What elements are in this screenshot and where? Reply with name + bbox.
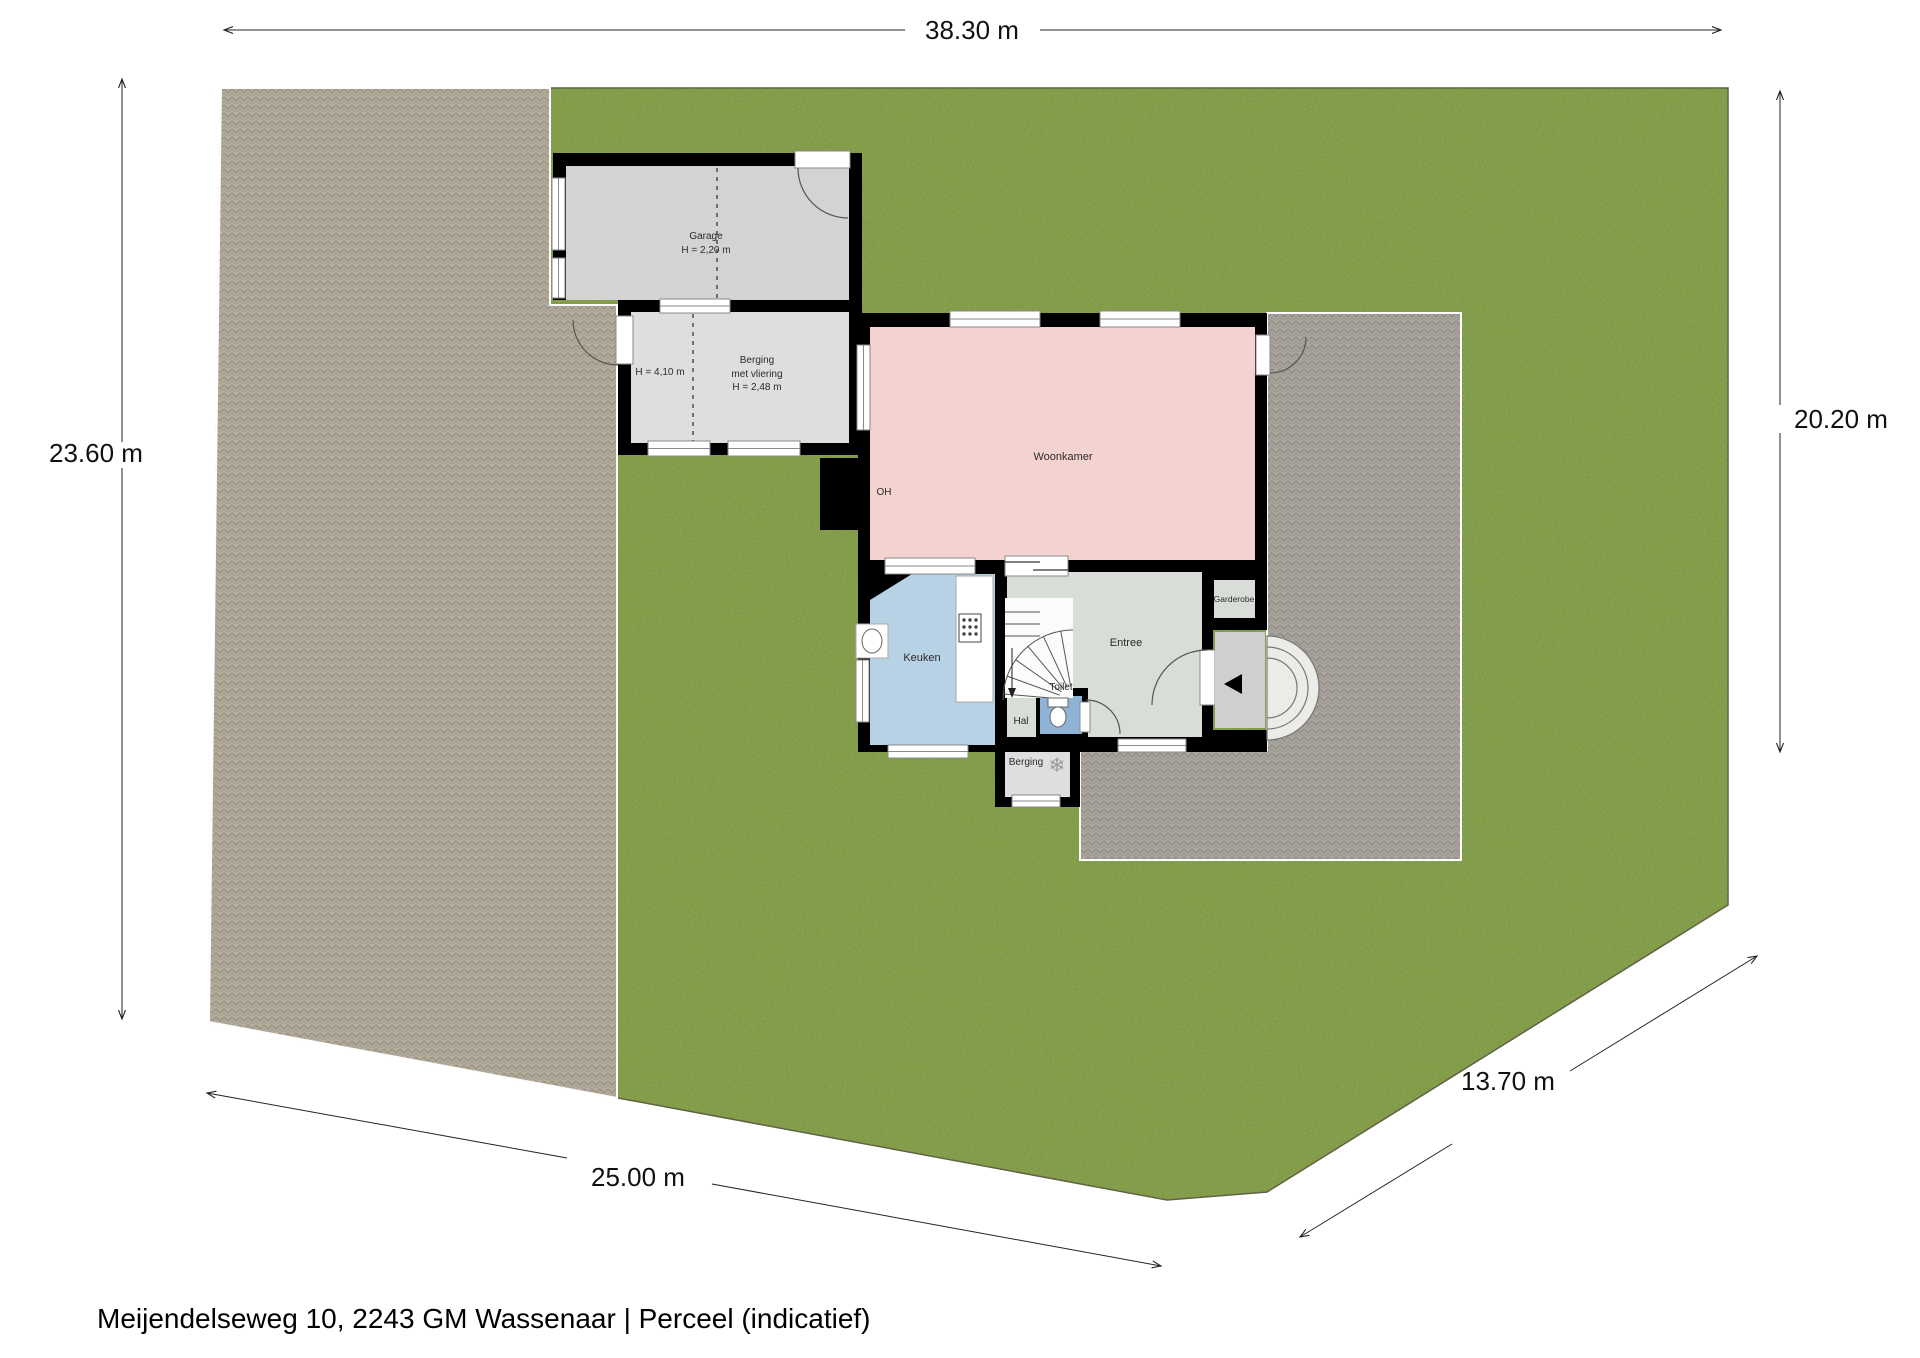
dimension-top: 38.30 m [224,15,1721,45]
fireplace [820,458,868,528]
dimension-label-bottom: 25.00 m [591,1162,685,1192]
label-fireplace: OH [877,487,892,498]
dimension-label-diagonal: 13.70 m [1461,1066,1555,1096]
label-annex-left-height: H = 4,10 m [635,367,684,378]
label-toilet: Toilet [1049,682,1073,693]
dimension-label-right: 20.20 m [1794,404,1888,434]
label-garderobe: Garderobe [1214,594,1255,604]
label-berging-small: Berging [1009,757,1043,768]
garage-door-opening [795,151,850,168]
label-garage: Garage [689,231,723,242]
dimension-label-top: 38.30 m [925,15,1019,45]
site-plan-page: ❄ Garage H = 2,20 m H = 4,10 m Berging m… [0,0,1920,1358]
plan-caption: Meijendelseweg 10, 2243 GM Wassenaar | P… [97,1303,871,1334]
label-garage-height: H = 2,20 m [681,245,730,256]
stove-icon [959,614,981,642]
front-door-opening [1200,650,1215,705]
freezer-icon: ❄ [1049,755,1066,777]
label-berging-annex-height: H = 2,48 m [732,382,781,393]
label-keuken: Keuken [903,652,940,664]
floorplan-canvas: ❄ Garage H = 2,20 m H = 4,10 m Berging m… [0,0,1920,1358]
label-berging-annex-sub: met vliering [731,369,782,380]
sink-icon [856,624,888,658]
terrace-door-opening [1256,335,1270,375]
label-hal: Hal [1013,716,1028,727]
berging-door-opening [616,316,633,364]
kitchen-counter [956,576,993,702]
sliding-door [1005,556,1068,576]
room-woonkamer [870,327,1255,560]
dimension-right: 20.20 m [1780,91,1888,752]
toilet-door-opening [1080,702,1090,732]
label-entree: Entree [1110,637,1142,649]
label-berging-annex: Berging [740,355,774,366]
dimension-label-left: 23.60 m [49,438,143,468]
label-woonkamer: Woonkamer [1033,451,1092,463]
toilet-fixture [1048,698,1068,727]
dimension-left: 23.60 m [49,79,143,1019]
